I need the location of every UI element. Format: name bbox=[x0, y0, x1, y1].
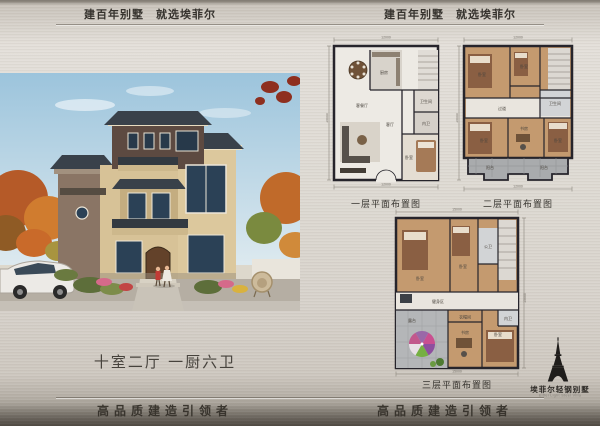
dim-width-top: 12000 bbox=[381, 36, 391, 40]
room-label: 过道 bbox=[498, 105, 506, 111]
room-label: 阳台 bbox=[486, 164, 494, 170]
room-label: 卧室 bbox=[478, 71, 486, 77]
header-slogan-right: 建百年别墅 就选埃菲尔 bbox=[300, 6, 600, 22]
floor-plan-1: 12000 15000 客餐厅 厨房 客厅 卧室 内卫 卫生间 12000 bbox=[326, 34, 446, 194]
room-label: 书房 bbox=[520, 125, 528, 131]
room-label: 卧室 bbox=[520, 63, 528, 69]
footer-rule bbox=[56, 397, 544, 398]
room-label: 卫生间 bbox=[549, 100, 561, 106]
room-label: 卫生间 bbox=[420, 98, 432, 104]
room-label: 客餐厅 bbox=[356, 102, 368, 108]
eiffel-tower-icon bbox=[541, 337, 575, 383]
metal-shade-top bbox=[0, 0, 600, 5]
dim-width-top: 12000 bbox=[513, 36, 523, 40]
villa-rendering bbox=[0, 73, 300, 311]
dim-width-bottom: 12000 bbox=[381, 183, 391, 187]
floor-plan-3: 15000 15000 卧室 卧室 公卫 健身区 露台 衣帽间 bbox=[386, 206, 528, 382]
dim-width-bottom: 15000 bbox=[452, 370, 462, 374]
room-label: 卧室 bbox=[405, 154, 413, 160]
villa-spec-caption: 十室二厅 一厨六卫 bbox=[58, 351, 272, 372]
terrace-umbrella bbox=[409, 331, 435, 357]
room-label: 公卫 bbox=[484, 244, 492, 249]
dim-height-right: 15000 bbox=[523, 293, 527, 303]
dim-height-left: 15000 bbox=[326, 113, 329, 123]
room-label: 卧室 bbox=[494, 331, 502, 337]
room-label: 内卫 bbox=[422, 120, 430, 126]
room-label: 书房 bbox=[461, 329, 469, 335]
header-slogan-left: 建百年别墅 就选埃菲尔 bbox=[0, 6, 300, 22]
room-label: 内卫 bbox=[504, 315, 512, 321]
room-label: 卧室 bbox=[416, 275, 424, 281]
floor-plan-3-label: 三层平面布置图 bbox=[386, 378, 528, 391]
footer-slogan-left: 高品质建造引领者 bbox=[40, 402, 290, 419]
brochure-page: 建百年别墅 就选埃菲尔 建百年别墅 就选埃菲尔 bbox=[0, 0, 600, 426]
footer-slogan-right: 高品质建造引领者 bbox=[330, 402, 560, 419]
header-rule bbox=[56, 24, 544, 25]
dim-width-top: 15000 bbox=[452, 208, 462, 212]
room-label: 健身区 bbox=[432, 298, 444, 304]
room-label: 卧室 bbox=[554, 137, 562, 143]
room-label: 卧室 bbox=[459, 263, 467, 269]
room-label: 露台 bbox=[408, 317, 416, 323]
dim-height-left: 15000 bbox=[456, 113, 459, 123]
room-label: 客厅 bbox=[386, 121, 394, 127]
dim-width-bottom: 12000 bbox=[513, 185, 523, 189]
room-label: 衣帽间 bbox=[459, 314, 471, 320]
room-label: 厨房 bbox=[380, 69, 388, 75]
room-label: 阳台 bbox=[540, 164, 548, 170]
room-label: 卧室 bbox=[480, 137, 488, 143]
floor-plan-2: 12000 15000 卧室 卧室 卫生间 过道 卧室 书房 卧室 阳台 阳台 … bbox=[456, 34, 580, 198]
